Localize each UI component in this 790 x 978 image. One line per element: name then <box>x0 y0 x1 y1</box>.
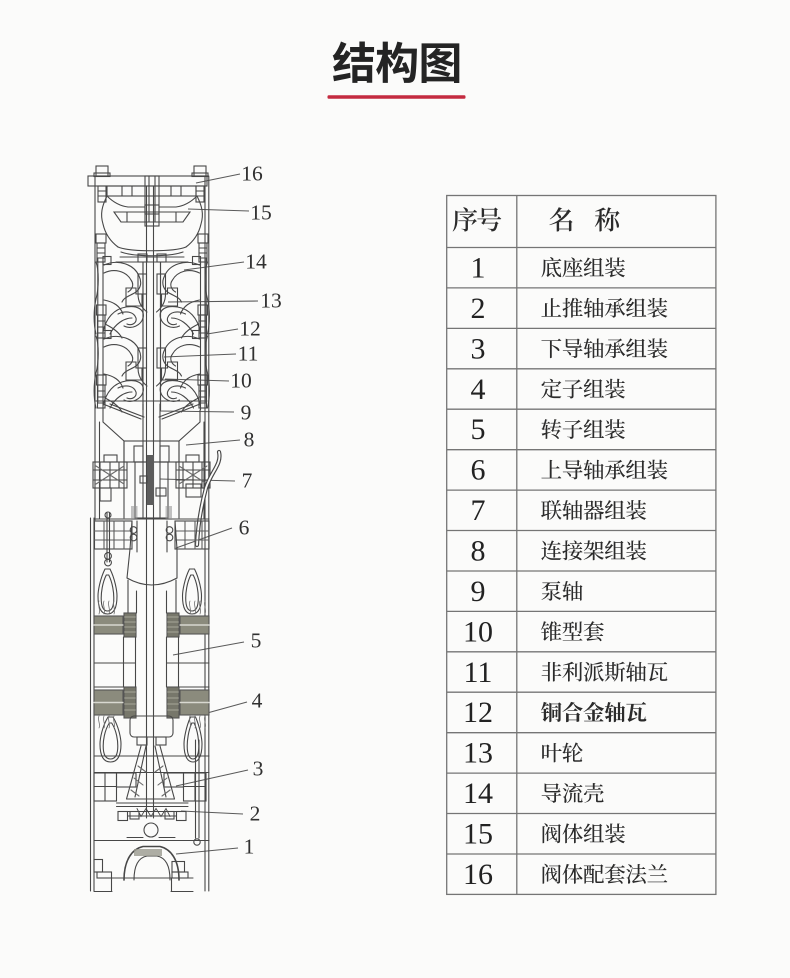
svg-text:4: 4 <box>471 373 486 406</box>
svg-text:8: 8 <box>244 428 255 452</box>
svg-text:1: 1 <box>471 252 486 285</box>
svg-text:10: 10 <box>230 369 252 393</box>
svg-text:16: 16 <box>463 858 493 891</box>
svg-text:16: 16 <box>241 162 263 186</box>
svg-text:1: 1 <box>244 835 255 859</box>
svg-text:11: 11 <box>238 342 259 366</box>
svg-text:8: 8 <box>471 535 486 568</box>
svg-text:10: 10 <box>463 615 493 648</box>
svg-text:2: 2 <box>471 292 486 325</box>
svg-text:13: 13 <box>463 737 493 770</box>
svg-text:12: 12 <box>239 317 261 341</box>
svg-text:7: 7 <box>242 469 253 493</box>
svg-text:9: 9 <box>471 575 486 608</box>
svg-text:3: 3 <box>253 757 264 781</box>
svg-text:14: 14 <box>463 777 493 810</box>
svg-text:15: 15 <box>250 201 272 225</box>
svg-text:11: 11 <box>464 656 493 689</box>
svg-text:5: 5 <box>251 629 262 653</box>
svg-text:9: 9 <box>241 401 252 425</box>
svg-text:12: 12 <box>463 696 493 729</box>
svg-text:15: 15 <box>463 818 493 851</box>
svg-text:5: 5 <box>471 413 486 446</box>
svg-text:2: 2 <box>250 802 261 826</box>
svg-text:4: 4 <box>252 689 263 713</box>
svg-text:13: 13 <box>260 289 282 313</box>
svg-text:3: 3 <box>471 332 486 365</box>
svg-text:6: 6 <box>239 516 250 540</box>
svg-text:7: 7 <box>471 494 486 527</box>
svg-text:6: 6 <box>471 454 486 487</box>
svg-text:14: 14 <box>245 250 267 274</box>
